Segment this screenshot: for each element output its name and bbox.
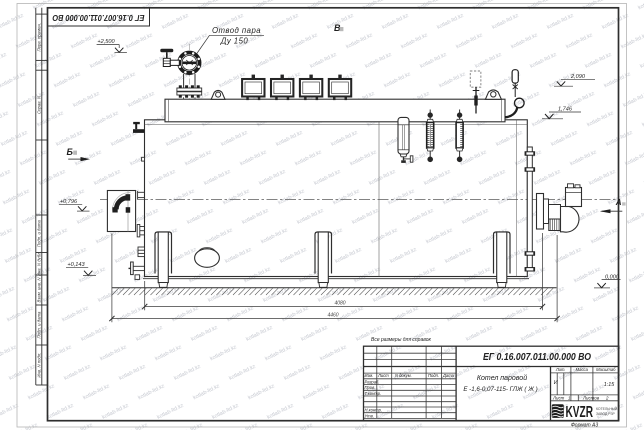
svg-text:Т.контр.: Т.контр. [365,391,382,396]
svg-text:Ду 150: Ду 150 [220,37,249,46]
svg-text:Масштаб: Масштаб [596,367,616,372]
svg-text:ЕГ 0.16.007.011.00.000 ВО: ЕГ 0.16.007.011.00.000 ВО [52,13,145,22]
svg-text:Дата: Дата [442,373,455,378]
svg-text:KVZR: KVZR [566,404,594,421]
svg-text:Б: Б [67,147,74,157]
svg-text:2: 2 [605,396,609,401]
svg-text:Изм.: Изм. [365,373,374,378]
svg-text:Е -1,6-0,07-115- ГЛЖ ( Ж ): Е -1,6-0,07-115- ГЛЖ ( Ж ) [463,386,537,393]
svg-text:Инв. N подл.: Инв. N подл. [36,352,41,377]
svg-text:4080: 4080 [334,301,345,307]
svg-text:Масса: Масса [576,367,589,372]
svg-text:ЗАВОД РЗР: ЗАВОД РЗР [596,412,615,416]
svg-text:Перв. примен.: Перв. примен. [36,23,41,52]
svg-text:Справ. N: Справ. N [36,95,41,114]
svg-text:А: А [615,198,622,207]
svg-text:ЕГ 0.16.007.011.00.000 ВО: ЕГ 0.16.007.011.00.000 ВО [483,352,591,363]
svg-text:Лист: Лист [377,373,389,378]
svg-text:Котел паровой: Котел паровой [477,374,527,382]
svg-text:Инв. N дубл.: Инв. N дубл. [36,251,41,276]
svg-text:Лист: Лист [552,396,565,401]
svg-text:Подп. и дата: Подп. и дата [36,220,41,248]
svg-text:Лит.: Лит. [555,367,566,372]
svg-text:Взам. инв. N: Взам. инв. N [36,277,41,303]
svg-text:1:15: 1:15 [604,382,615,388]
svg-text:Разраб.: Разраб. [365,379,380,384]
svg-text:N докум.: N докум. [395,373,412,378]
svg-text:Пров.: Пров. [365,385,376,390]
svg-text:Утв.: Утв. [365,413,374,418]
svg-text:И: И [554,380,558,386]
svg-text:Подп.: Подп. [428,373,439,378]
svg-text:Все размеры для справок: Все размеры для справок [371,337,432,343]
svg-text:КОТЕЛЬНЫЙ: КОТЕЛЬНЫЙ [596,407,618,411]
svg-text:Н.контр.: Н.контр. [365,408,383,413]
svg-text:4460: 4460 [327,313,338,319]
svg-text:Подп. и дата: Подп. и дата [36,311,41,339]
svg-text:Формат А3: Формат А3 [571,423,599,429]
svg-text:Листов: Листов [582,396,600,401]
svg-text:Отвод пара: Отвод пара [212,26,261,35]
